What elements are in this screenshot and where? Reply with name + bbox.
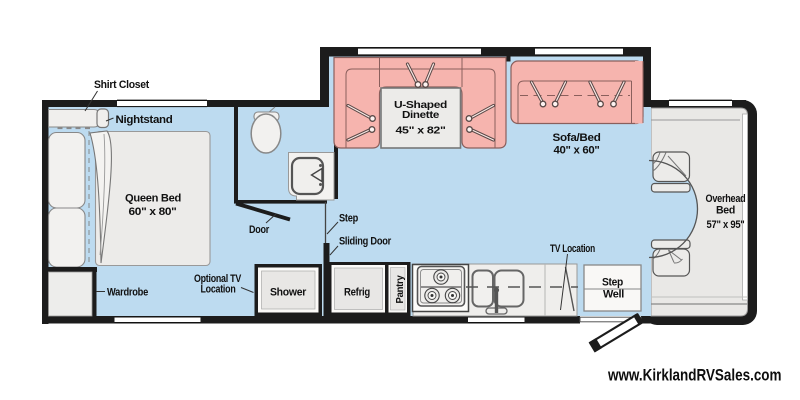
svg-text:Refrig: Refrig <box>344 287 370 299</box>
svg-text:Queen Bed: Queen Bed <box>125 193 181 205</box>
svg-text:Door: Door <box>249 224 270 236</box>
svg-text:40" x 60": 40" x 60" <box>554 145 600 157</box>
svg-text:TV Location: TV Location <box>550 243 595 255</box>
svg-text:45" x 82": 45" x 82" <box>396 125 446 137</box>
svg-text:Step: Step <box>602 277 624 289</box>
svg-text:Pantry: Pantry <box>394 275 406 303</box>
svg-text:www.KirklandRVSales.com: www.KirklandRVSales.com <box>607 366 781 385</box>
svg-text:Bed: Bed <box>716 205 735 217</box>
svg-text:Location: Location <box>201 284 236 296</box>
svg-text:Dinette: Dinette <box>402 109 439 121</box>
svg-text:Nightstand: Nightstand <box>116 114 173 126</box>
svg-text:57" x 95": 57" x 95" <box>707 219 745 231</box>
svg-text:Wardrobe: Wardrobe <box>107 287 148 299</box>
svg-text:60" x 80": 60" x 80" <box>129 206 177 218</box>
svg-text:Well: Well <box>603 288 624 300</box>
svg-text:Shirt Closet: Shirt Closet <box>94 79 150 91</box>
svg-text:Sofa/Bed: Sofa/Bed <box>553 132 601 144</box>
svg-text:Sliding Door: Sliding Door <box>339 236 392 248</box>
svg-text:Shower: Shower <box>270 287 307 299</box>
svg-text:Step: Step <box>339 212 358 224</box>
svg-text:Overhead: Overhead <box>706 193 746 205</box>
